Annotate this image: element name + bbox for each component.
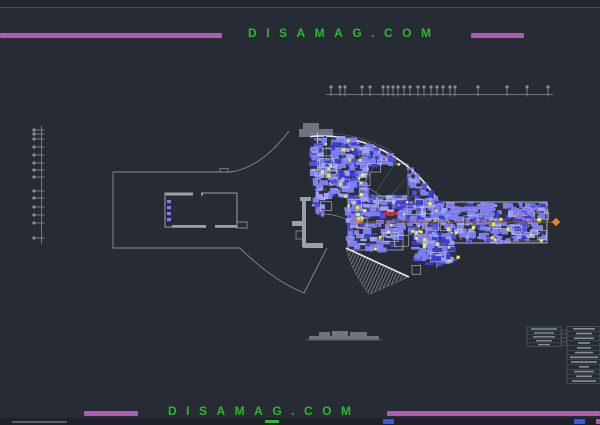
watermark-bar-bottom-left	[84, 411, 138, 416]
bottom-edge-blue-dash-1	[383, 419, 394, 424]
watermark-text-bottom: DISAMAG.COM	[168, 404, 361, 418]
left-building	[165, 192, 247, 229]
site-outline	[113, 131, 328, 293]
graphic-scale-bar	[305, 331, 383, 341]
cad-screenshot-root: DISAMAG.COM DISAMAG.COM	[0, 0, 600, 425]
top-grid-ruler	[326, 85, 553, 96]
bottom-edge-green-dash	[265, 420, 279, 423]
bottom-edge-magenta-dash	[596, 419, 600, 424]
bottom-edge-strip	[0, 418, 600, 425]
bottom-edge-blue-dash-2	[574, 419, 585, 424]
watermark-bar-bottom-right	[387, 411, 600, 416]
floor-plan-canvas	[0, 0, 600, 425]
bottom-edge-gray-dash	[12, 421, 67, 423]
title-block	[527, 327, 600, 384]
hatch-wedge	[346, 248, 409, 295]
left-grid-ruler	[32, 126, 44, 244]
